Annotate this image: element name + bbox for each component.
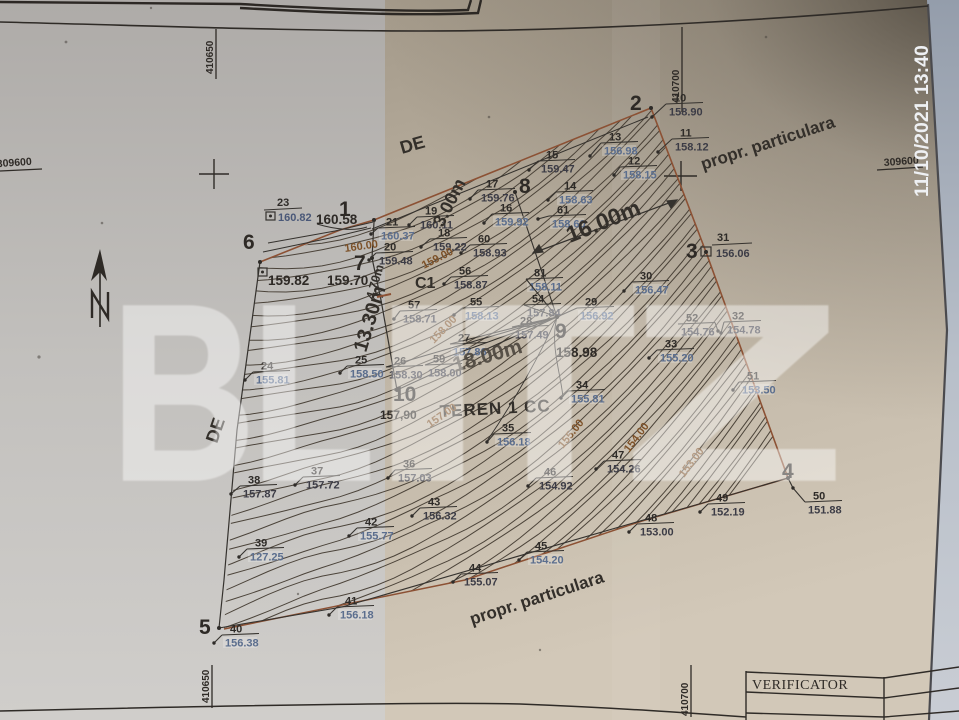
svg-text:40: 40 [230,624,242,636]
svg-text:5: 5 [199,616,211,639]
svg-text:L: L [251,254,375,533]
svg-text:17: 17 [486,179,498,191]
svg-text:155.07: 155.07 [464,577,498,589]
svg-text:39: 39 [255,538,267,550]
svg-text:60: 60 [478,234,490,246]
svg-text:41: 41 [345,596,357,608]
svg-text:11/10/2021 13:40: 11/10/2021 13:40 [911,45,933,197]
svg-text:410650: 410650 [201,669,212,703]
svg-text:20: 20 [384,242,396,254]
svg-text:14: 14 [564,181,577,193]
svg-text:127.25: 127.25 [250,552,284,564]
svg-text:10: 10 [674,93,686,105]
svg-text:156.18: 156.18 [340,610,374,622]
svg-text:158.12: 158.12 [675,142,709,154]
svg-text:160.58: 160.58 [316,212,358,227]
svg-text:309600: 309600 [0,156,32,170]
svg-text:159.92: 159.92 [495,217,529,229]
svg-text:B: B [111,253,255,532]
svg-text:Z: Z [625,254,843,533]
svg-text:61: 61 [557,205,569,217]
svg-text:160.82: 160.82 [278,212,312,224]
svg-text:16: 16 [500,203,512,215]
svg-text:13: 13 [609,132,621,144]
svg-text:44: 44 [469,563,482,575]
svg-text:159.47: 159.47 [541,164,575,176]
svg-text:15: 15 [546,150,558,162]
svg-text:154.20: 154.20 [530,555,564,567]
svg-text:2: 2 [630,92,642,115]
svg-text:12: 12 [628,156,640,168]
svg-text:410650: 410650 [205,40,216,74]
svg-text:45: 45 [535,541,547,553]
svg-text:410700: 410700 [680,682,691,716]
svg-text:8: 8 [519,175,531,198]
svg-text:11: 11 [680,128,692,140]
svg-text:VERIFICATOR: VERIFICATOR [752,678,848,693]
svg-text:158.90: 158.90 [669,107,703,119]
svg-text:158.15: 158.15 [623,170,657,182]
svg-text:23: 23 [277,197,289,209]
svg-text:156.38: 156.38 [225,638,259,650]
svg-text:T: T [464,254,635,533]
svg-text:21: 21 [386,217,398,229]
svg-text:6: 6 [243,231,255,254]
svg-text:31: 31 [717,232,729,244]
